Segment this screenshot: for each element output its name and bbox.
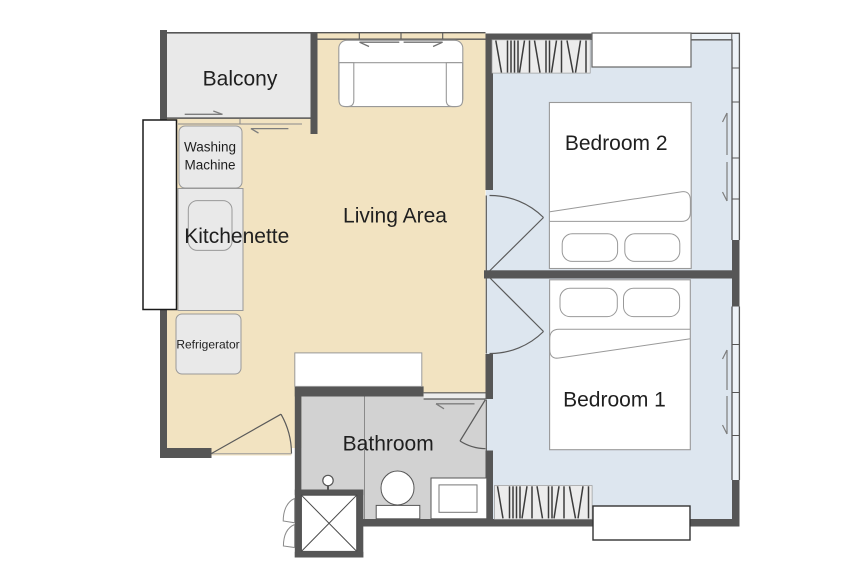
svg-text:Machine: Machine xyxy=(184,157,235,172)
svg-text:Washing: Washing xyxy=(184,139,236,154)
svg-text:Bathroom: Bathroom xyxy=(343,432,434,455)
svg-text:Bedroom 1: Bedroom 1 xyxy=(563,389,666,412)
svg-text:Refrigerator: Refrigerator xyxy=(176,338,239,352)
svg-text:Balcony: Balcony xyxy=(203,68,278,91)
svg-text:Living Area: Living Area xyxy=(343,204,447,227)
svg-text:Bedroom 2: Bedroom 2 xyxy=(565,132,668,155)
svg-text:Kitchenette: Kitchenette xyxy=(184,225,289,248)
